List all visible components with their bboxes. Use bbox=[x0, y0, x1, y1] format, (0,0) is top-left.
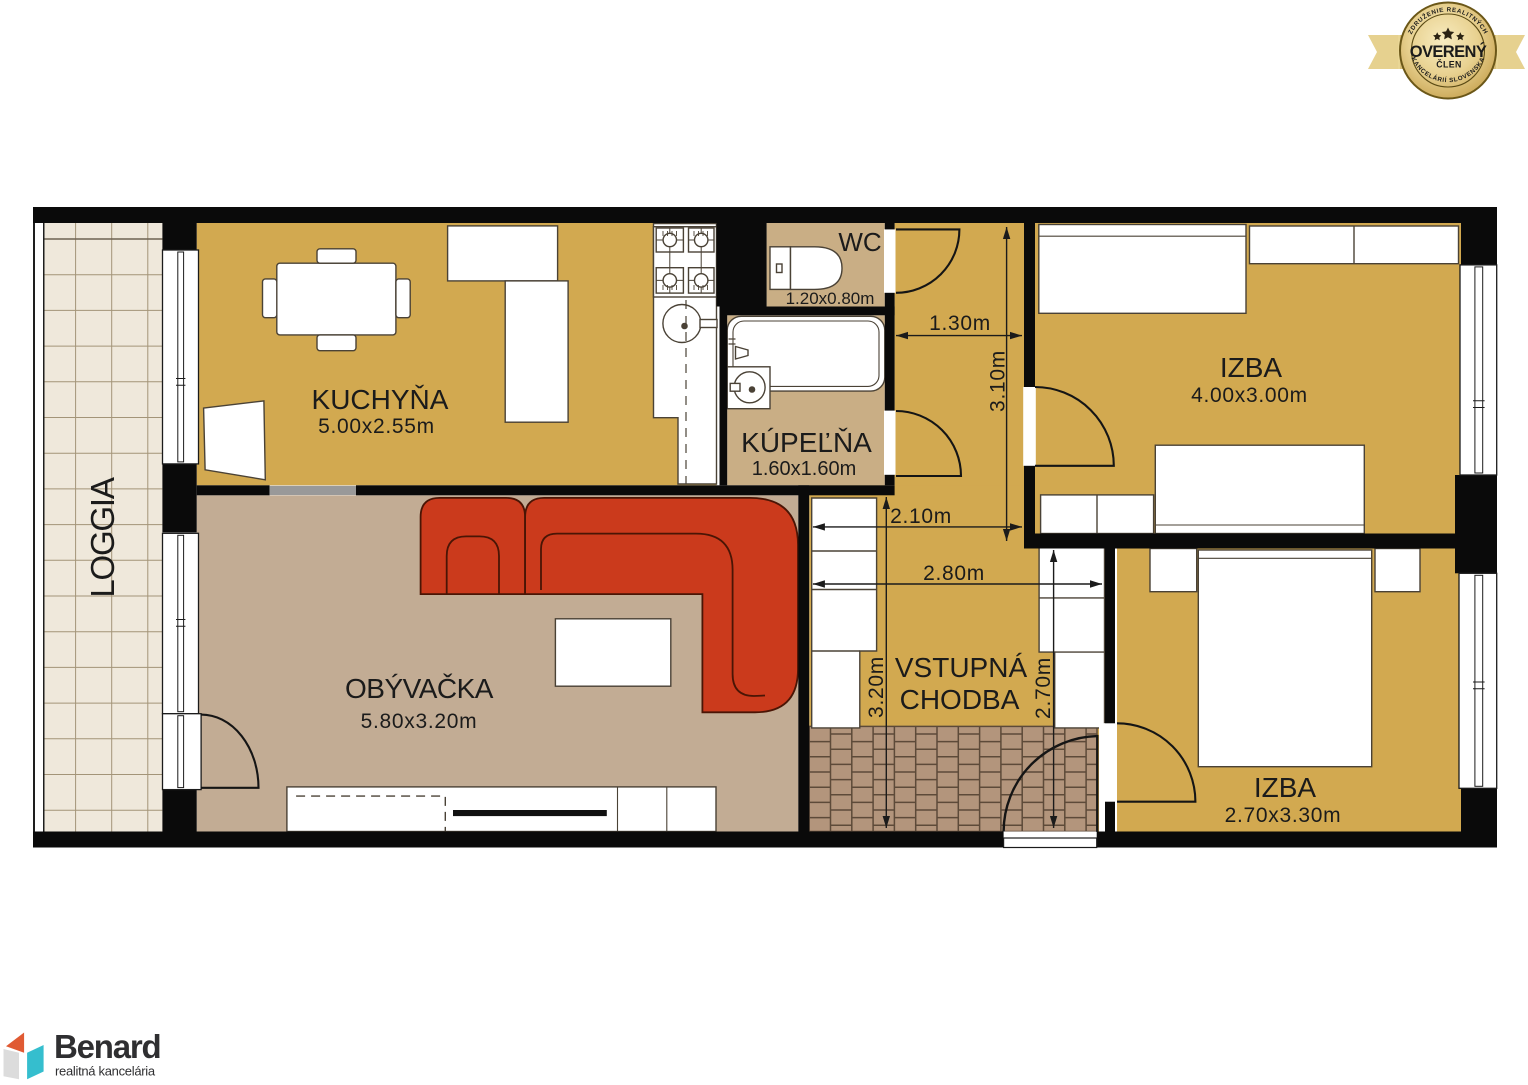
svg-text:5.00x2.55m: 5.00x2.55m bbox=[318, 415, 435, 438]
svg-text:Benard: Benard bbox=[54, 1028, 161, 1065]
svg-text:2.80m: 2.80m bbox=[923, 562, 985, 585]
svg-text:IZBA: IZBA bbox=[1220, 352, 1283, 383]
svg-text:OVERENÝ: OVERENÝ bbox=[1410, 42, 1487, 61]
svg-text:WC: WC bbox=[838, 227, 881, 257]
svg-text:realitná kancelária: realitná kancelária bbox=[55, 1064, 156, 1079]
svg-text:ČLEN: ČLEN bbox=[1436, 59, 1462, 70]
svg-text:1.60x1.60m: 1.60x1.60m bbox=[752, 458, 857, 480]
svg-text:CHODBA: CHODBA bbox=[900, 684, 1020, 715]
svg-text:3.20m: 3.20m bbox=[865, 656, 888, 718]
svg-text:2.70m: 2.70m bbox=[1032, 657, 1055, 719]
svg-text:3.10m: 3.10m bbox=[987, 350, 1010, 412]
svg-text:OBÝVAČKA: OBÝVAČKA bbox=[345, 673, 494, 704]
svg-text:VSTUPNÁ: VSTUPNÁ bbox=[895, 652, 1028, 683]
svg-text:5.80x3.20m: 5.80x3.20m bbox=[361, 710, 478, 733]
svg-text:4.00x3.00m: 4.00x3.00m bbox=[1191, 384, 1308, 407]
svg-text:1.20x0.80m: 1.20x0.80m bbox=[786, 289, 875, 308]
svg-text:KUCHYŇA: KUCHYŇA bbox=[312, 384, 449, 415]
svg-text:IZBA: IZBA bbox=[1254, 772, 1317, 803]
svg-text:2.70x3.30m: 2.70x3.30m bbox=[1225, 804, 1342, 827]
svg-text:1.30m: 1.30m bbox=[929, 312, 991, 335]
svg-text:2.10m: 2.10m bbox=[890, 505, 952, 528]
svg-text:LOGGIA: LOGGIA bbox=[84, 477, 121, 598]
svg-text:KÚPEĽŇA: KÚPEĽŇA bbox=[741, 427, 872, 458]
